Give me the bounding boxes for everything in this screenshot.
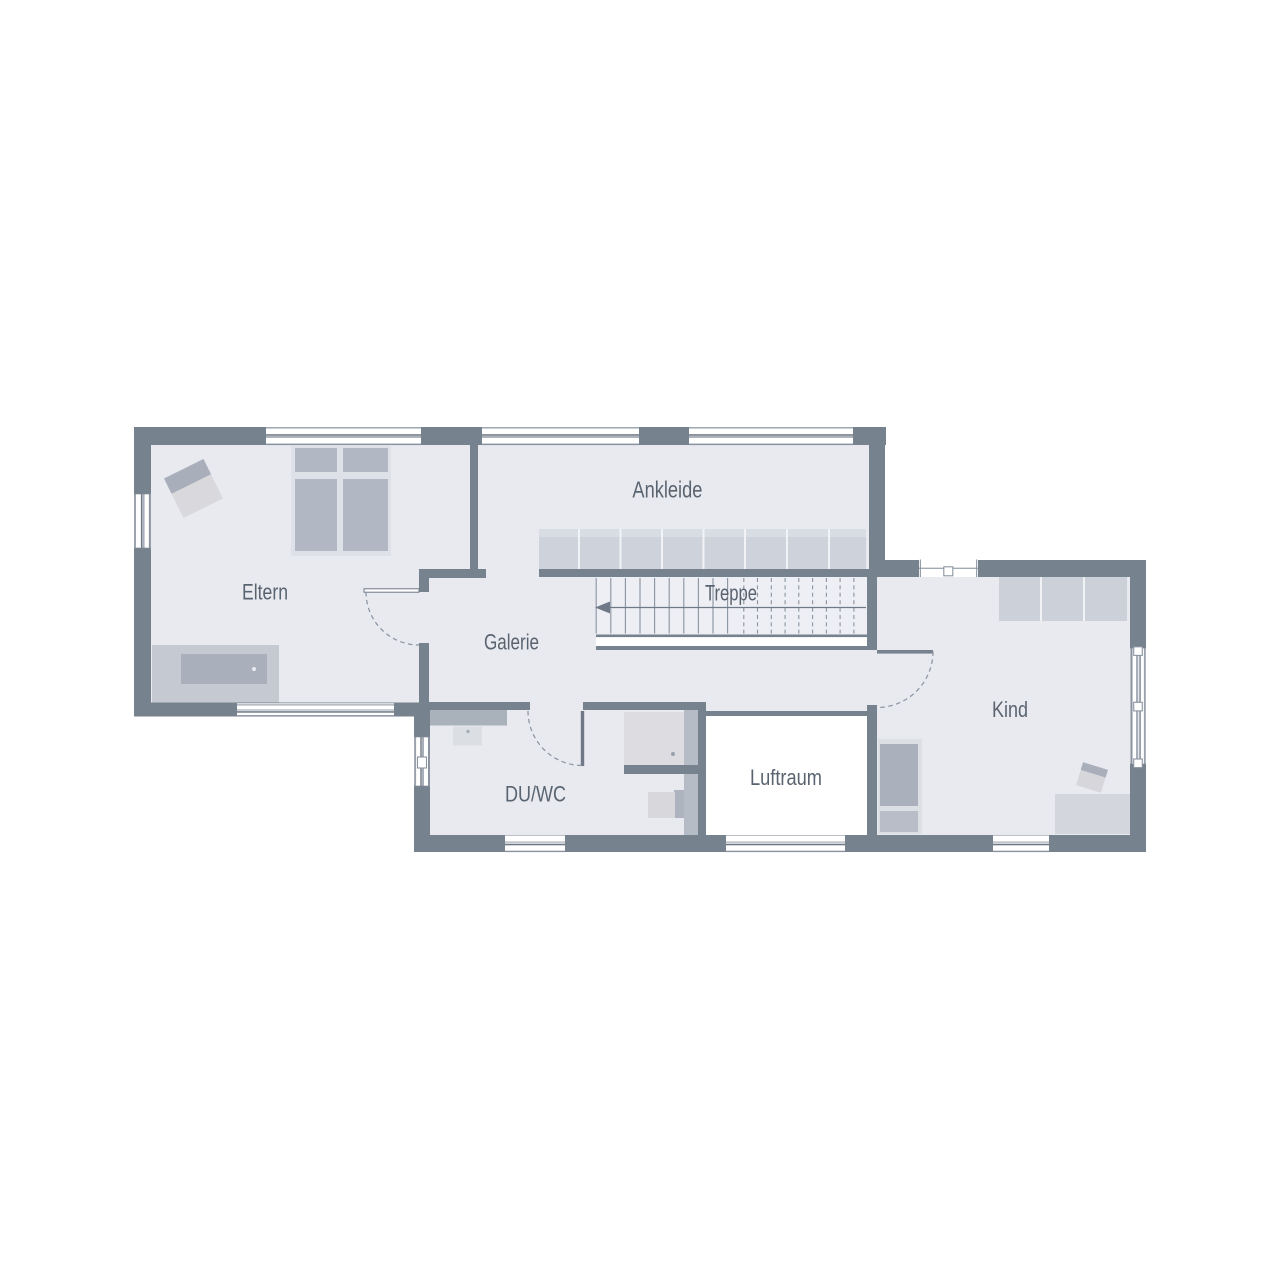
svg-text:Galerie: Galerie bbox=[484, 630, 539, 655]
svg-text:Treppe: Treppe bbox=[705, 581, 757, 606]
svg-text:Eltern: Eltern bbox=[242, 580, 288, 605]
svg-text:Ankleide: Ankleide bbox=[632, 477, 702, 503]
svg-text:Kind: Kind bbox=[992, 697, 1028, 722]
svg-text:Luftraum: Luftraum bbox=[750, 765, 822, 790]
svg-text:DU/WC: DU/WC bbox=[505, 782, 566, 807]
